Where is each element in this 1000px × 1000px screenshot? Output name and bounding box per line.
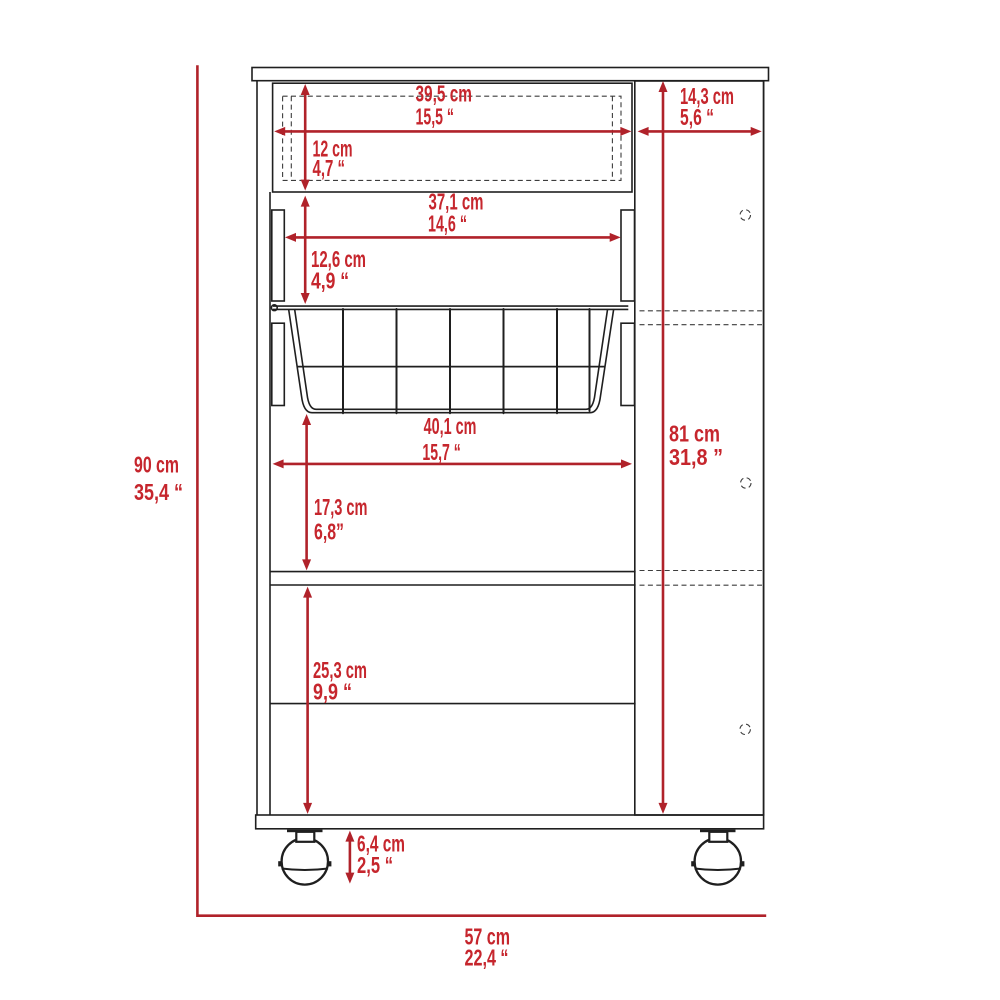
svg-text:22,4 “: 22,4 “ [465, 945, 509, 971]
svg-text:14,6 “: 14,6 “ [428, 211, 467, 237]
svg-text:2,5 “: 2,5 “ [357, 852, 393, 878]
svg-text:9,9 “: 9,9 “ [313, 679, 352, 705]
svg-text:4,9 “: 4,9 “ [311, 268, 349, 294]
svg-text:35,4 “: 35,4 “ [134, 479, 183, 505]
svg-text:5,6 “: 5,6 “ [680, 104, 714, 130]
svg-text:15,7 “: 15,7 “ [422, 439, 460, 465]
svg-text:90 cm: 90 cm [134, 452, 179, 478]
svg-text:15,5 “: 15,5 “ [416, 104, 455, 130]
svg-text:4,7 “: 4,7 “ [313, 155, 346, 181]
svg-text:40,1 cm: 40,1 cm [424, 413, 477, 439]
svg-text:17,3 cm: 17,3 cm [314, 494, 368, 520]
svg-text:6,8”: 6,8” [314, 519, 344, 545]
svg-text:31,8 ”: 31,8 ” [669, 444, 723, 470]
svg-text:81 cm: 81 cm [669, 421, 720, 447]
